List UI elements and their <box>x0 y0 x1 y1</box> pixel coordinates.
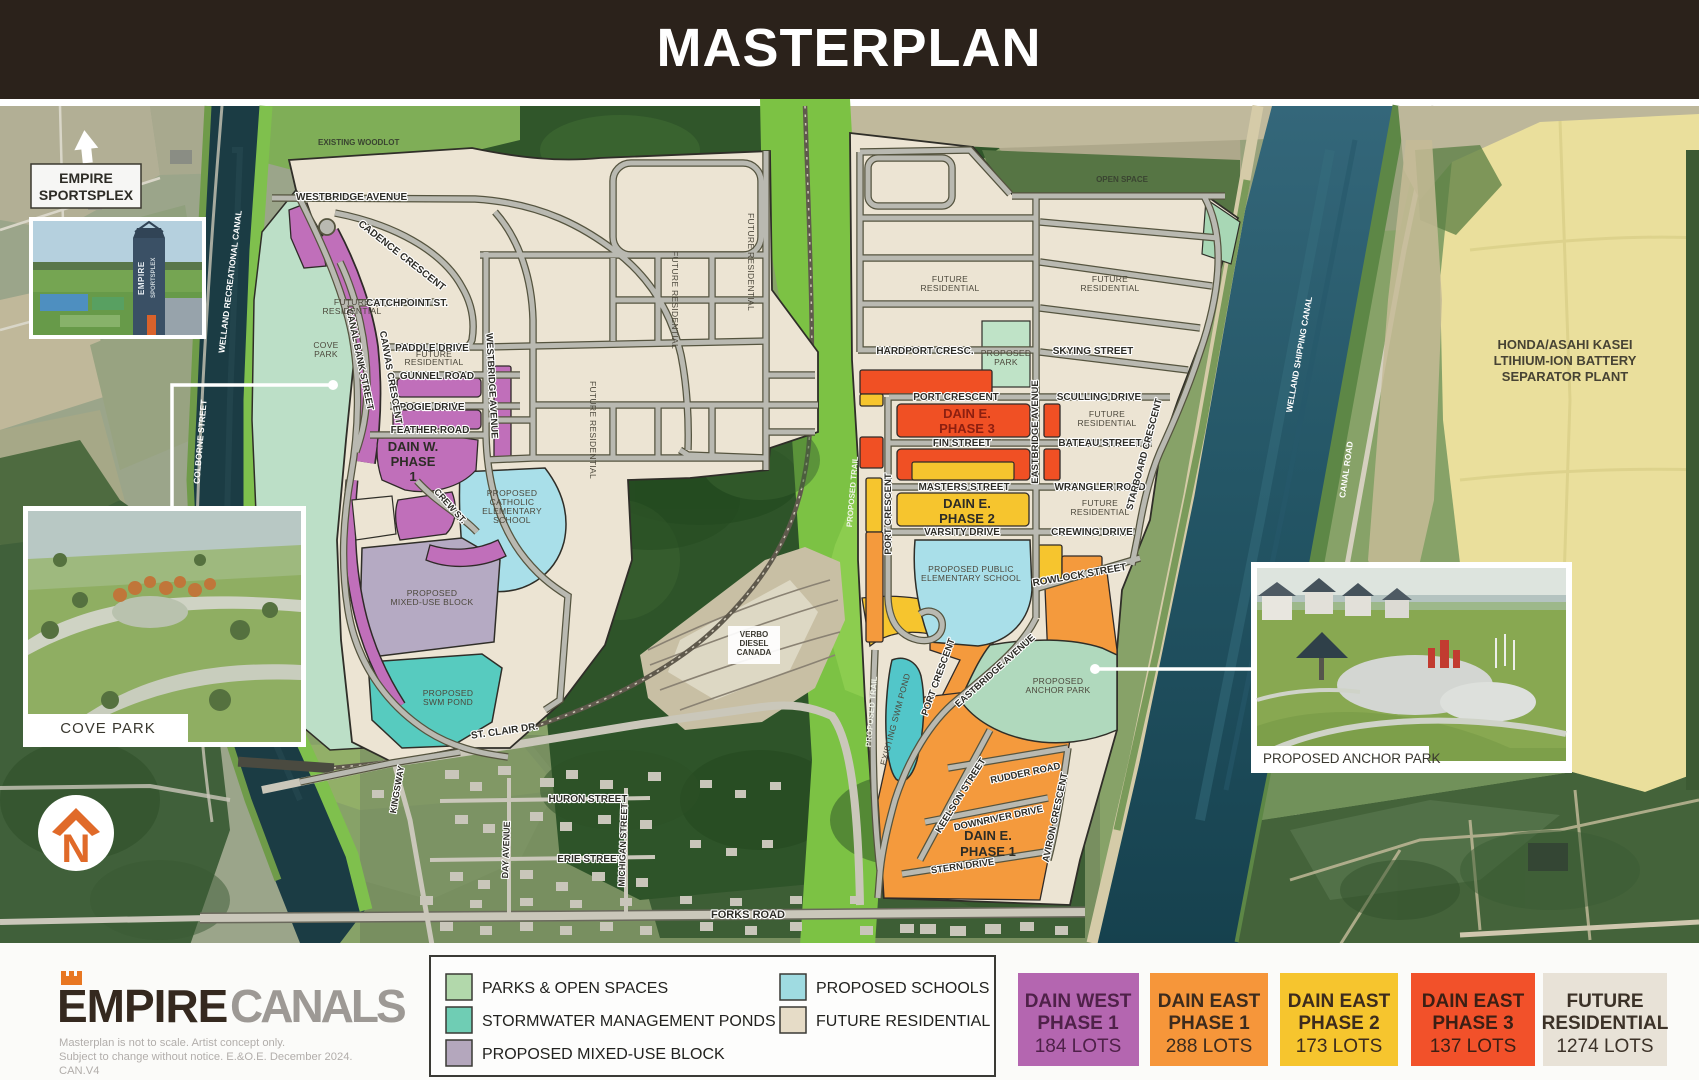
svg-text:MASTERPLAN: MASTERPLAN <box>657 18 1042 78</box>
svg-text:SCULLING DRIVE: SCULLING DRIVE <box>1057 392 1142 403</box>
svg-text:PHASE 1: PHASE 1 <box>960 844 1016 859</box>
svg-text:EMPIRE: EMPIRE <box>57 980 227 1032</box>
svg-text:RESIDENTIAL: RESIDENTIAL <box>404 357 463 367</box>
svg-text:DAIN E.: DAIN E. <box>943 496 991 511</box>
svg-text:EXISTING WOODLOT: EXISTING WOODLOT <box>318 138 399 147</box>
svg-text:LTIHIUM-ION BATTERY: LTIHIUM-ION BATTERY <box>1494 353 1637 368</box>
svg-text:RESIDENTIAL: RESIDENTIAL <box>920 283 979 293</box>
svg-text:DAIN E.: DAIN E. <box>964 828 1012 843</box>
svg-text:DAIN EAST: DAIN EAST <box>1422 991 1525 1012</box>
svg-text:CANADA: CANADA <box>737 648 772 657</box>
svg-text:HONDA/ASAHI KASEI: HONDA/ASAHI KASEI <box>1497 337 1632 352</box>
svg-text:FIN STREET: FIN STREET <box>933 438 991 449</box>
svg-text:POGIE DRIVE: POGIE DRIVE <box>399 402 464 413</box>
svg-text:PARK: PARK <box>314 349 338 359</box>
svg-text:SCHOOL: SCHOOL <box>493 515 531 525</box>
svg-text:EASTBRIDGE AVENUE: EASTBRIDGE AVENUE <box>1030 380 1041 483</box>
svg-text:WESTBRIDGE AVENUE: WESTBRIDGE AVENUE <box>296 192 407 203</box>
svg-text:FUTURE RESIDENTIAL: FUTURE RESIDENTIAL <box>588 381 598 479</box>
svg-text:N: N <box>62 827 91 871</box>
svg-text:1: 1 <box>409 469 416 484</box>
svg-text:SEPARATOR PLANT: SEPARATOR PLANT <box>1502 369 1628 384</box>
svg-text:PHASE: PHASE <box>391 454 436 469</box>
svg-text:DAY AVENUE: DAY AVENUE <box>500 821 512 878</box>
svg-text:OPEN SPACE: OPEN SPACE <box>1096 175 1149 184</box>
svg-text:GUNNEL ROAD: GUNNEL ROAD <box>400 371 474 382</box>
svg-text:HURON STREET: HURON STREET <box>549 794 628 805</box>
svg-text:PROPOSED MIXED-USE BLOCK: PROPOSED MIXED-USE BLOCK <box>482 1046 725 1063</box>
svg-text:DAIN EAST: DAIN EAST <box>1288 991 1391 1012</box>
svg-text:PROPOSED SCHOOLS: PROPOSED SCHOOLS <box>816 980 989 997</box>
svg-text:PARK: PARK <box>994 357 1018 367</box>
svg-text:RESIDENTIAL: RESIDENTIAL <box>1542 1013 1669 1034</box>
svg-text:184 LOTS: 184 LOTS <box>1035 1036 1122 1057</box>
svg-text:1274 LOTS: 1274 LOTS <box>1556 1036 1653 1057</box>
svg-text:RESIDENTIAL: RESIDENTIAL <box>1077 418 1136 428</box>
svg-text:BATEAU STREET: BATEAU STREET <box>1058 438 1141 449</box>
svg-text:DAIN W.: DAIN W. <box>388 439 439 454</box>
svg-text:PHASE 2: PHASE 2 <box>1298 1013 1379 1034</box>
svg-text:DAIN WEST: DAIN WEST <box>1025 991 1132 1012</box>
svg-text:FUTURE RESIDENTIAL: FUTURE RESIDENTIAL <box>816 1013 990 1030</box>
svg-text:EMPIRE: EMPIRE <box>137 261 146 295</box>
svg-text:PHASE 3: PHASE 3 <box>939 421 995 436</box>
svg-text:RESIDENTIAL: RESIDENTIAL <box>1080 283 1139 293</box>
svg-text:FUTURE RESIDENTIAL: FUTURE RESIDENTIAL <box>670 251 680 349</box>
svg-text:SWM POND: SWM POND <box>423 697 473 707</box>
svg-text:Masterplan is not to scale. Ar: Masterplan is not to scale. Artist conce… <box>59 1037 285 1049</box>
svg-text:ELEMENTARY SCHOOL: ELEMENTARY SCHOOL <box>921 573 1021 583</box>
svg-text:HARDPORT CRESC.: HARDPORT CRESC. <box>876 346 973 357</box>
svg-text:173 LOTS: 173 LOTS <box>1296 1036 1383 1057</box>
svg-text:VARSITY DRIVE: VARSITY DRIVE <box>924 527 1000 538</box>
svg-text:DAIN E.: DAIN E. <box>943 406 991 421</box>
svg-text:CAN.V4: CAN.V4 <box>59 1065 99 1077</box>
svg-text:PORT CRESCENT: PORT CRESCENT <box>913 392 999 403</box>
svg-text:288 LOTS: 288 LOTS <box>1166 1036 1253 1057</box>
svg-text:MIXED-USE BLOCK: MIXED-USE BLOCK <box>391 597 474 607</box>
svg-text:PHASE 3: PHASE 3 <box>1432 1013 1513 1034</box>
svg-text:PROPOSED ANCHOR PARK: PROPOSED ANCHOR PARK <box>1263 751 1441 766</box>
svg-text:MASTERS STREET: MASTERS STREET <box>918 482 1009 493</box>
svg-text:PHASE 1: PHASE 1 <box>1168 1013 1250 1034</box>
svg-text:137 LOTS: 137 LOTS <box>1430 1036 1517 1057</box>
svg-text:ANCHOR PARK: ANCHOR PARK <box>1025 685 1090 695</box>
svg-text:SPORTSPLEX: SPORTSPLEX <box>39 187 134 203</box>
svg-text:CREWING DRIVE: CREWING DRIVE <box>1051 527 1133 538</box>
svg-text:FORKS ROAD: FORKS ROAD <box>711 909 785 921</box>
svg-text:PORT CRESCENT: PORT CRESCENT <box>883 473 894 554</box>
svg-text:ERIE STREET: ERIE STREET <box>557 854 623 865</box>
svg-text:Subject to change without noti: Subject to change without notice. E.&O.E… <box>59 1051 353 1063</box>
svg-text:SPORTSPLEX: SPORTSPLEX <box>151 258 157 298</box>
svg-text:FUTURE RESIDENTIAL: FUTURE RESIDENTIAL <box>746 213 756 311</box>
svg-text:CANALS: CANALS <box>230 980 405 1032</box>
svg-text:PHASE 2: PHASE 2 <box>939 511 995 526</box>
svg-text:SKYING STREET: SKYING STREET <box>1053 346 1134 357</box>
svg-text:EMPIRE: EMPIRE <box>59 170 113 186</box>
svg-text:PHASE 1: PHASE 1 <box>1037 1013 1119 1034</box>
svg-text:RESIDENTIAL: RESIDENTIAL <box>1070 507 1129 517</box>
svg-text:DAIN EAST: DAIN EAST <box>1158 991 1261 1012</box>
svg-text:RESIDENTIAL: RESIDENTIAL <box>322 306 381 316</box>
svg-text:FEATHER ROAD: FEATHER ROAD <box>391 425 470 436</box>
svg-text:VERBO: VERBO <box>740 630 768 639</box>
svg-text:COVE PARK: COVE PARK <box>60 720 155 737</box>
svg-text:STORMWATER MANAGEMENT PONDS: STORMWATER MANAGEMENT PONDS <box>482 1013 776 1030</box>
svg-text:DIESEL: DIESEL <box>740 639 769 648</box>
svg-text:PARKS & OPEN SPACES: PARKS & OPEN SPACES <box>482 980 668 997</box>
svg-text:FUTURE: FUTURE <box>1566 991 1643 1012</box>
